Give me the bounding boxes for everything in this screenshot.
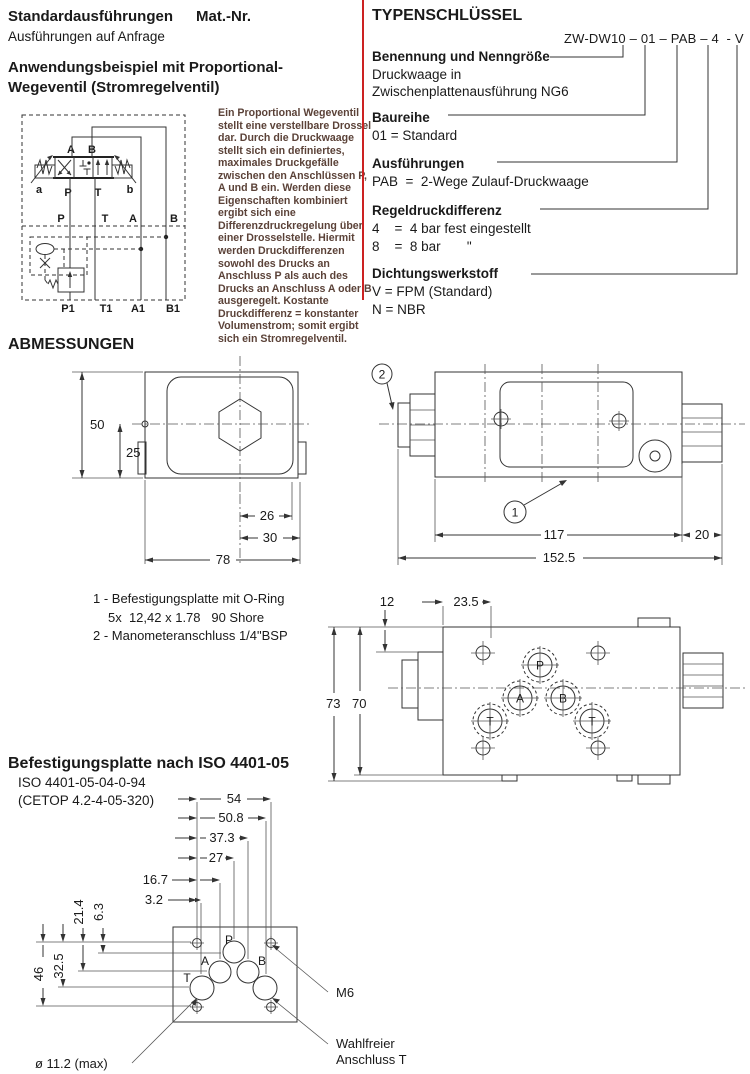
section-divider-line (362, 0, 364, 300)
front-right-tab (298, 442, 306, 474)
top-right-knob (683, 653, 723, 708)
gauge-stub (398, 403, 410, 447)
plate-heading: Befestigungsplatte nach ISO 4401-05 (8, 755, 289, 773)
mounting-plate-drawing: 54 50.8 37.3 27 16.7 3.2 (10, 778, 450, 1074)
dim-167-label: 16.7 (143, 872, 168, 887)
top-tab-lower (638, 775, 670, 784)
plate-top-dims: 54 50.8 37.3 27 16.7 3.2 (143, 791, 271, 907)
dim-26-label: 26 (260, 508, 274, 523)
dim-373-label: 37.3 (209, 830, 234, 845)
top-view-drawing: P A B T T 12 23.5 73 (318, 588, 750, 788)
valve-port-a-label: A (67, 144, 75, 156)
dim-63-label: 6.3 (91, 903, 106, 921)
dim-325-label: 32.5 (51, 953, 66, 978)
application-heading-line1: Anwendungsbeispiel mit Proportional- (8, 59, 283, 76)
top-tab-upper (638, 618, 670, 627)
side-view-drawing: 2 1 117 20 152.5 (363, 352, 750, 587)
balloon-1-label: 1 (512, 506, 519, 520)
top-port-b-label: B (559, 692, 567, 706)
optional-t-label-line1: Wahlfreier (336, 1036, 395, 1051)
typecode-baureihe-title: Baureihe (372, 110, 430, 125)
circuit-outer-boundary (22, 115, 185, 300)
proportional-valve-symbol (31, 155, 136, 183)
mid-port-t-label: T (102, 213, 109, 225)
typecode-dichtung-line1: V = FPM (Standard) (372, 284, 492, 299)
dim-235-label: 23.5 (453, 594, 478, 609)
dim-32-label: 3.2 (145, 892, 163, 907)
top-left-stub (402, 660, 418, 708)
valve-port-t-label: T (95, 187, 102, 199)
plate-port-a-label: A (201, 954, 209, 968)
side-bolt-marks (491, 409, 629, 431)
dim-78-label: 78 (216, 552, 230, 567)
application-heading-line2: Wegeventil (Stromregelventil) (8, 79, 219, 96)
valve-port-p-label: P (64, 187, 71, 199)
header-subtitle: Ausführungen auf Anfrage (8, 29, 165, 44)
note-3: 2 - Manometeranschluss 1/4"BSP (93, 628, 288, 643)
dim-12-label: 12 (380, 594, 394, 609)
datasheet-page: Standardausführungen Mat.-Nr. Ausführung… (0, 0, 750, 1074)
dim-27-label: 27 (209, 850, 223, 865)
sub-port-b1-label: B1 (166, 303, 180, 315)
hydraulic-circuit-diagram: A B a b P T (8, 106, 208, 320)
top-ports: P A B T T (471, 646, 611, 740)
top-port-t2-label: T (588, 715, 596, 729)
sub-port-a1-label: A1 (131, 303, 145, 315)
mid-port-b-label: B (170, 213, 178, 225)
dim-117-label: 117 (544, 527, 565, 542)
front-body-panel (167, 377, 293, 474)
matnr-label: Mat.-Nr. (196, 8, 251, 25)
top-port-t1-label: T (486, 715, 494, 729)
circuit-lines (70, 127, 168, 300)
plate-left-dims: 46 32.5 21.4 6.3 (31, 899, 221, 1006)
plate-port-t-label: T (183, 971, 191, 985)
side-right-end (682, 404, 722, 462)
dim-25-label: 25 (126, 445, 140, 460)
diameter-label: ø 11.2 (max) (35, 1056, 108, 1071)
typecode-dichtung-line2: N = NBR (372, 302, 426, 317)
top-port-a-label: A (516, 692, 524, 706)
plate-port-p-label: P (225, 933, 233, 947)
top-port-p-label: P (536, 659, 544, 673)
front-body (145, 372, 298, 478)
dim-50-label: 50 (90, 417, 104, 432)
pressure-compensator-symbol (30, 237, 166, 292)
note-1: 1 - Befestigungsplatte mit O-Ring (93, 591, 284, 606)
dim-70-label: 70 (352, 696, 366, 711)
dim-214-label: 21.4 (71, 899, 86, 924)
dim-46-label: 46 (31, 967, 46, 981)
front-view-drawing: 50 25 26 30 78 (58, 352, 318, 584)
plate-port-b-label: B (258, 954, 266, 968)
mid-port-a-label: A (129, 213, 137, 225)
dim-73-label: 73 (326, 696, 340, 711)
page-title: Standardausführungen (8, 8, 173, 25)
actuator-b-label: b (127, 184, 134, 196)
dim-54-label: 54 (227, 791, 241, 806)
plate-leaders: M6 Wahlfreier Anschluss T ø 11.2 (max) (35, 945, 407, 1071)
typecode-heading: TYPENSCHLÜSSEL (372, 7, 522, 25)
side-body (435, 372, 682, 477)
dim-508-label: 50.8 (218, 810, 243, 825)
plate-bolt-holes (190, 936, 278, 1014)
mid-port-p-label: P (57, 213, 64, 225)
application-paragraph: Ein Proportional Wegeventil stellt eine … (218, 107, 373, 345)
balloon-2-label: 2 (379, 368, 386, 382)
m6-label: M6 (336, 985, 354, 1000)
typecode-connector-lines (440, 42, 750, 282)
note-2: 5x 12,42 x 1.78 90 Shore (108, 610, 264, 625)
actuator-a-label: a (36, 184, 43, 196)
top-left-step (418, 652, 443, 720)
dim-152-label: 152.5 (543, 550, 576, 565)
gauge-port (639, 440, 671, 472)
dim-20-label: 20 (695, 527, 709, 542)
sub-port-t1-label: T1 (100, 303, 113, 315)
sub-port-p1-label: P1 (61, 303, 74, 315)
optional-t-label-line2: Anschluss T (336, 1052, 407, 1067)
dim-30-label: 30 (263, 530, 277, 545)
